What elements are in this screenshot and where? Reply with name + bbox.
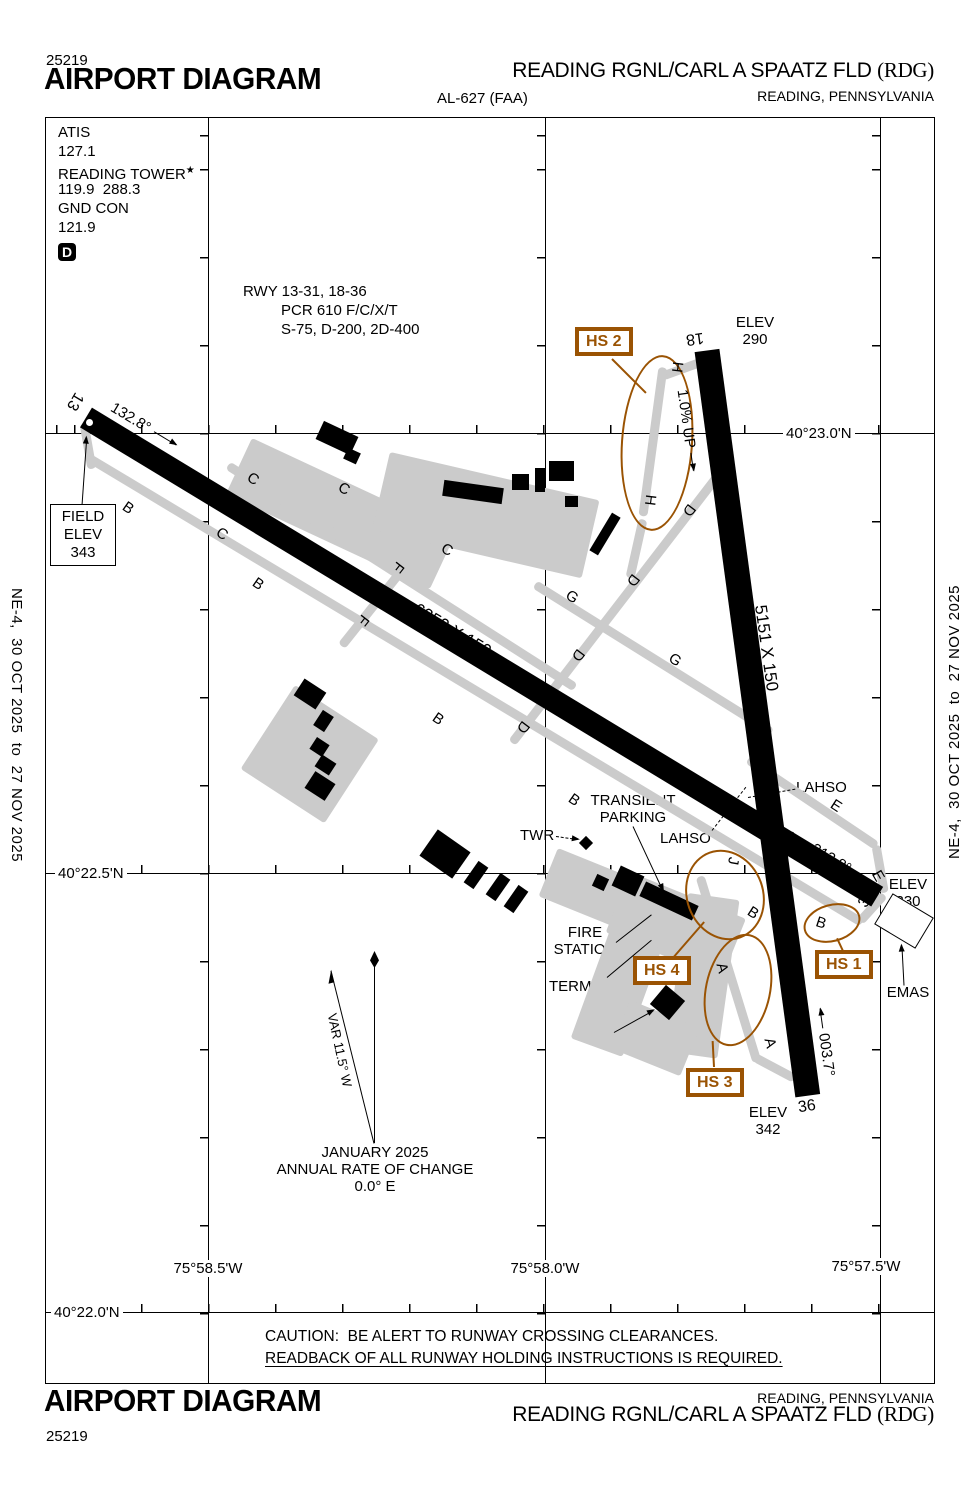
parallel-22-5: [45, 865, 934, 874]
page-title-top: AIRPORT DIAGRAM: [44, 70, 321, 87]
meridian-57-5: [872, 117, 881, 1383]
rwy18-heading-arrow-icon: [720, 419, 724, 439]
side-text-left: NE-4, 30 OCT 2025 to 27 NOV 2025: [8, 588, 25, 862]
chart-number-bottom: 25219: [46, 1428, 88, 1445]
lat-23-0-label: 40°23.0'N: [783, 425, 855, 442]
lon-57-5-label: 75°57.5'W: [829, 1258, 904, 1275]
airport-name-text: READING RGNL/CARL A SPAATZ FLD: [512, 59, 871, 82]
parallel-22-0: [45, 1304, 934, 1313]
airport-diagram-page: 25219 AIRPORT DIAGRAM AL-627 (FAA) READI…: [0, 0, 978, 1500]
meridian-58-0: [537, 117, 546, 1383]
hs3-label: HS 3: [686, 1068, 744, 1097]
building: [512, 474, 529, 490]
building: [549, 461, 574, 481]
field-elev-line2: ELEV: [57, 526, 109, 544]
airport-code-bottom-text: (RDG): [877, 1402, 934, 1426]
rwy31-heading-arrow-icon: [786, 831, 809, 845]
map-border: [45, 117, 935, 1384]
rwy13-displaced-threshold-dot: [86, 419, 93, 426]
building: [565, 496, 578, 507]
airport-code-text: (RDG): [877, 58, 934, 82]
field-elev-line3: 343: [57, 544, 109, 562]
airport-city-top: READING, PENNSYLVANIA: [757, 88, 934, 105]
field-elev-line1: FIELD: [57, 508, 109, 526]
true-north-arrow-line: [374, 967, 375, 1143]
page-title-bottom: AIRPORT DIAGRAM: [44, 1392, 321, 1409]
rwy18-slope-arrow-icon: [690, 453, 693, 471]
airport-name-bottom-text: READING RGNL/CARL A SPAATZ FLD: [512, 1403, 871, 1426]
field-elev-box: FIELD ELEV 343: [50, 504, 116, 566]
rwy13-heading-arrow-icon: [153, 431, 176, 445]
meridian-58-5: [200, 117, 209, 1383]
d-atis-badge: D: [58, 243, 76, 261]
taxiway-label-h: H: [668, 361, 686, 374]
lat-22-0-label: 40°22.0'N: [51, 1304, 123, 1321]
side-text-right: NE-4, 30 OCT 2025 to 27 NOV 2025: [946, 585, 963, 859]
rwy36-heading-arrow-icon: [820, 1008, 824, 1028]
taxiway-label-h: H: [641, 494, 659, 507]
airport-name-bottom: READING RGNL/CARL A SPAATZ FLD (RDG): [512, 1406, 934, 1423]
al-number-top: AL-627 (FAA): [437, 90, 528, 107]
hs2-label: HS 2: [575, 327, 633, 356]
building: [535, 468, 545, 492]
airport-name-top: READING RGNL/CARL A SPAATZ FLD (RDG): [512, 62, 934, 79]
lon-58-0-label: 75°58.0'W: [508, 1260, 583, 1277]
lat-22-5-label: 40°22.5'N: [55, 865, 127, 882]
lon-58-5-label: 75°58.5'W: [171, 1260, 246, 1277]
hs1-label: HS 1: [815, 950, 873, 979]
hs4-label: HS 4: [633, 956, 691, 985]
